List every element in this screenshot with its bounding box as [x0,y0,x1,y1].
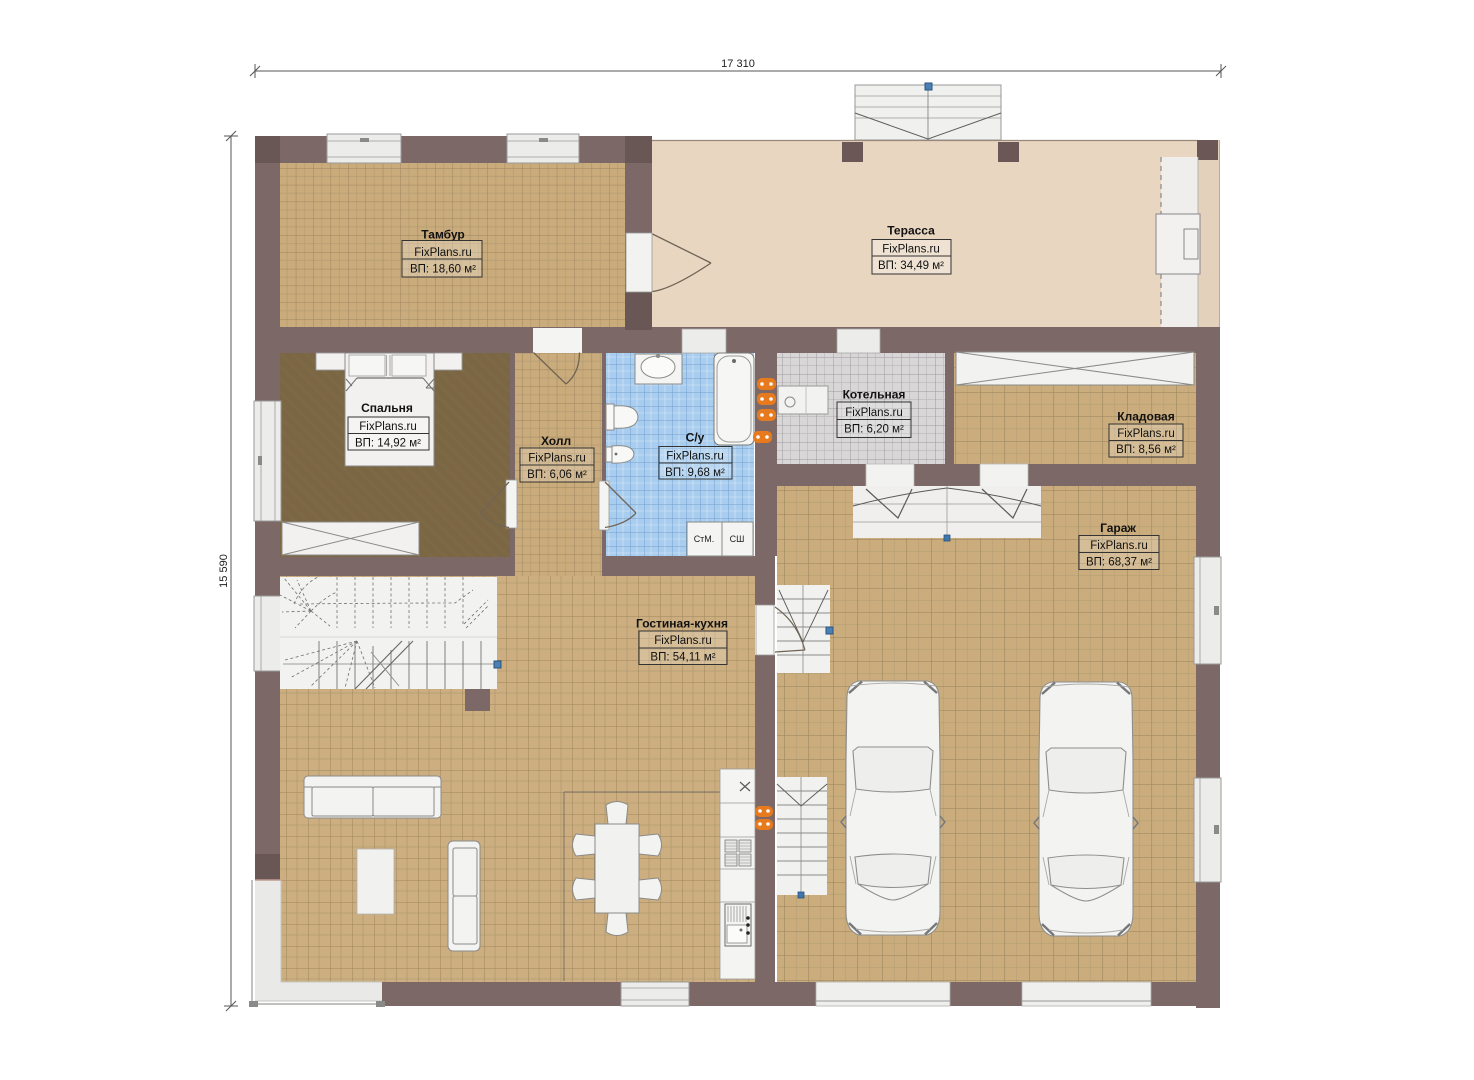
svg-text:Тамбур: Тамбур [421,228,465,242]
svg-text:Гостиная-кухня: Гостиная-кухня [636,617,728,631]
svg-text:СШ: СШ [730,534,745,544]
svg-text:15 590: 15 590 [218,554,230,588]
svg-text:ВП: 9,68 м²: ВП: 9,68 м² [665,467,725,479]
svg-text:ВП: 14,92 м²: ВП: 14,92 м² [355,438,421,450]
svg-text:17 310: 17 310 [721,58,755,70]
svg-text:ВП: 34,49 м²: ВП: 34,49 м² [878,260,944,272]
svg-text:ВП: 68,37 м²: ВП: 68,37 м² [1086,557,1152,569]
svg-text:Кладовая: Кладовая [1117,410,1174,424]
svg-text:ВП: 6,20 м²: ВП: 6,20 м² [844,424,904,436]
svg-text:СтМ.: СтМ. [694,534,715,544]
svg-text:Спальня: Спальня [361,401,413,415]
svg-text:FixPlans.ru: FixPlans.ru [414,247,472,259]
svg-text:FixPlans.ru: FixPlans.ru [666,451,724,463]
svg-text:Котельная: Котельная [843,388,906,402]
svg-text:FixPlans.ru: FixPlans.ru [845,407,903,419]
svg-text:Терасса: Терасса [887,224,935,238]
svg-text:ВП: 8,56 м²: ВП: 8,56 м² [1116,444,1176,456]
svg-text:С/у: С/у [686,431,705,445]
svg-text:FixPlans.ru: FixPlans.ru [1117,428,1175,440]
svg-text:ВП: 54,11 м²: ВП: 54,11 м² [650,652,715,664]
svg-text:ВП: 6,06 м²: ВП: 6,06 м² [527,469,587,481]
svg-text:ВП: 18,60 м²: ВП: 18,60 м² [410,264,476,276]
svg-text:Гараж: Гараж [1100,521,1136,535]
svg-text:FixPlans.ru: FixPlans.ru [528,453,586,465]
svg-text:FixPlans.ru: FixPlans.ru [1090,540,1148,552]
svg-text:FixPlans.ru: FixPlans.ru [359,421,417,433]
svg-text:Холл: Холл [541,434,571,448]
svg-text:FixPlans.ru: FixPlans.ru [654,635,712,647]
svg-text:FixPlans.ru: FixPlans.ru [882,244,940,256]
